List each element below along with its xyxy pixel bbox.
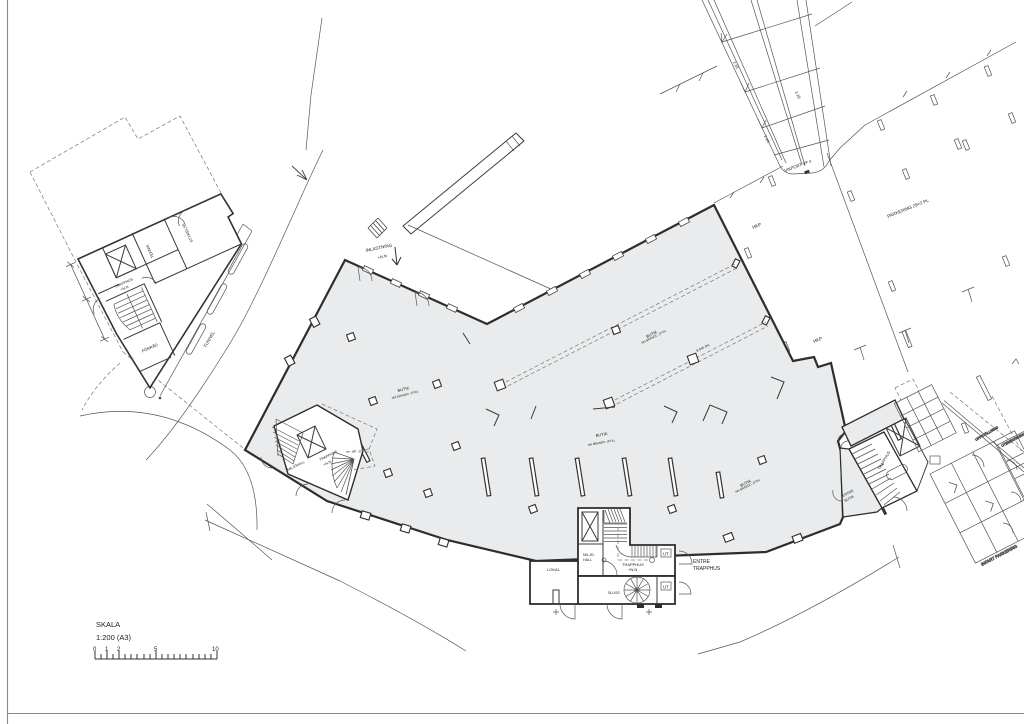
svg-text:LOKAL: LOKAL (547, 567, 561, 572)
svg-text:1:200 (A3): 1:200 (A3) (96, 633, 132, 642)
svg-text:TRAPPHUS: TRAPPHUS (693, 566, 721, 572)
svg-text:UT: UT (663, 552, 669, 557)
svg-text:MILJÖ-: MILJÖ- (583, 553, 596, 557)
svg-text:HALL: HALL (583, 558, 592, 562)
svg-text:SLUSS: SLUSS (608, 591, 620, 595)
svg-text:+N.N: +N.N (628, 567, 637, 572)
svg-text:SKALA: SKALA (96, 620, 120, 629)
svg-text:ENTRE: ENTRE (693, 559, 711, 565)
svg-text:10: 10 (212, 647, 219, 653)
svg-text:UT: UT (663, 585, 669, 590)
